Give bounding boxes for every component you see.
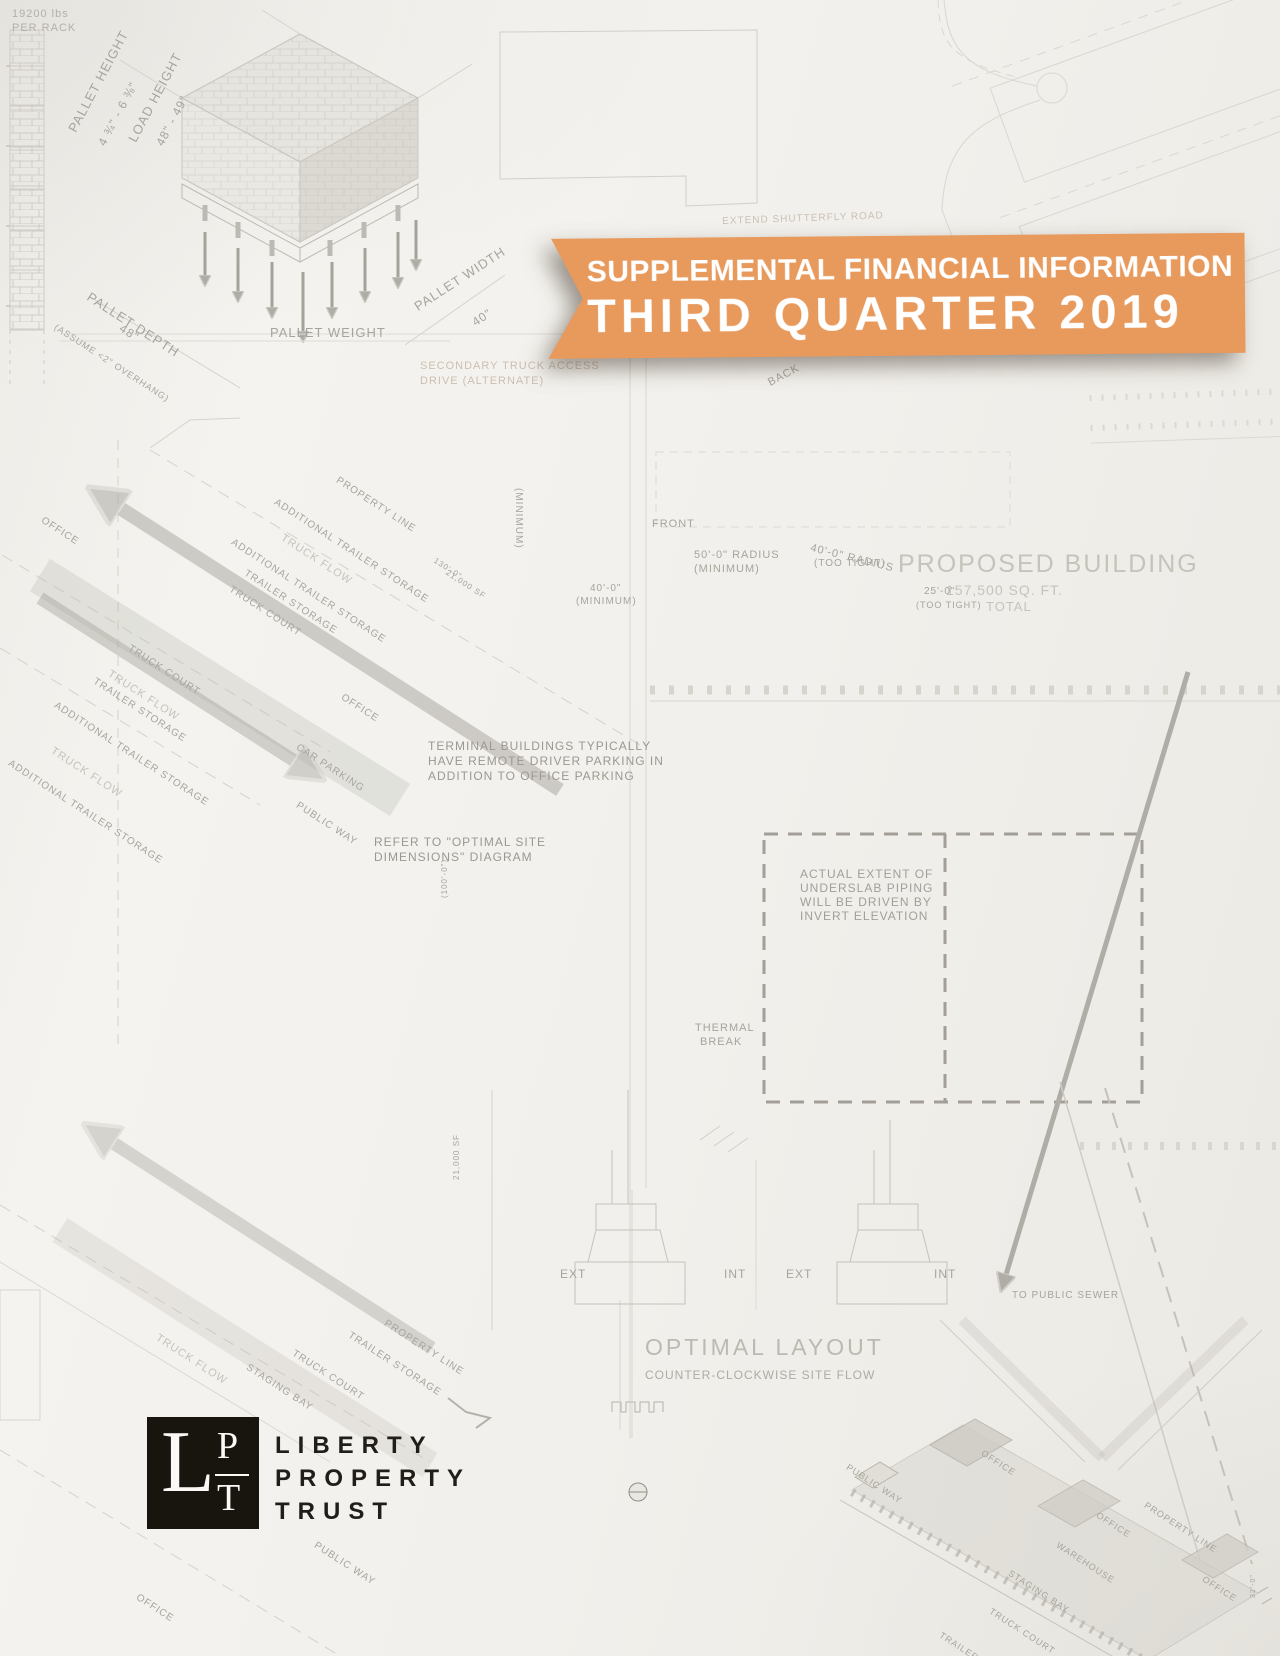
- report-cover-page: 19200 lbsPER RACKPALLET HEIGHT4 ¾" - 6 ⅜…: [0, 0, 1280, 1656]
- blueprint-label: ADDITION TO OFFICE PARKING: [428, 770, 635, 784]
- blueprint-label: (MINIMUM): [576, 596, 637, 608]
- blueprint-label: 21,000 SF: [444, 568, 488, 601]
- blueprint-label: FRONT: [652, 518, 695, 531]
- blueprint-label: TRAILER STORAGE: [346, 1330, 443, 1399]
- blueprint-label: (MINIMUM): [694, 563, 760, 576]
- blueprint-label: TRAILER STORAGE: [937, 1630, 1026, 1656]
- blueprint-label: 157,500 SQ. FT.: [946, 582, 1063, 598]
- blueprint-label: (TOO TIGHT): [916, 600, 982, 610]
- title-banner-ribbon: SUPPLEMENTAL FINANCIAL INFORMATION THIRD…: [504, 233, 1245, 359]
- blueprint-label: TOTAL: [986, 600, 1032, 615]
- blueprint-label: OFFICE: [339, 692, 381, 725]
- blueprint-label: PROPERTY LINE: [1142, 1500, 1219, 1555]
- blueprint-label: STAGING BAY: [1006, 1568, 1071, 1615]
- company-name: LIBERTY PROPERTY TRUST: [275, 1429, 471, 1528]
- title-banner: SUPPLEMENTAL FINANCIAL INFORMATION THIRD…: [504, 233, 1245, 359]
- company-name-line3: TRUST: [275, 1495, 471, 1528]
- logo-letter-p: P: [217, 1427, 238, 1465]
- blueprint-label: TRUCK COURT: [987, 1606, 1057, 1656]
- blueprint-label: COUNTER-CLOCKWISE SITE FLOW: [645, 1369, 875, 1383]
- blueprint-label: TO PUBLIC SEWER: [1012, 1290, 1119, 1302]
- blueprint-label: EXT: [786, 1268, 812, 1282]
- blueprint-label: 50'-0" RADIUS: [694, 549, 780, 562]
- blueprint-label: EXT: [560, 1268, 586, 1282]
- blueprint-label: OFFICE: [1200, 1574, 1238, 1604]
- logo-letter-l: L: [161, 1419, 215, 1507]
- logo-divider-bar: [215, 1474, 249, 1476]
- blueprint-label: 32'-0": [1250, 1574, 1258, 1598]
- blueprint-label: UNDERSLAB PIPING: [800, 882, 933, 896]
- banner-subtitle: SUPPLEMENTAL FINANCIAL INFORMATION: [587, 250, 1245, 289]
- blueprint-label: 25'-0": [924, 586, 955, 598]
- blueprint-label: PROPERTY LINE: [334, 475, 418, 535]
- blueprint-label: 40'-0": [590, 583, 621, 595]
- blueprint-label: PUBLIC WAY: [312, 1540, 377, 1588]
- blueprint-label: ACTUAL EXTENT OF: [800, 868, 933, 882]
- company-logo-mark: L P T: [147, 1417, 259, 1529]
- blueprint-label: TERMINAL BUILDINGS TYPICALLY: [428, 740, 651, 754]
- blueprint-label: REFER TO "OPTIMAL SITE: [374, 836, 546, 850]
- blueprint-label: 21,000 SF: [452, 1134, 461, 1180]
- banner-title: THIRD QUARTER 2019: [587, 286, 1245, 341]
- blueprint-label: SECONDARY TRUCK ACCESS: [420, 360, 600, 373]
- blueprint-label: WAREHOUSE: [1054, 1540, 1116, 1586]
- blueprint-label: BACK: [766, 362, 802, 389]
- blueprint-label: (TOO TIGHT): [814, 558, 886, 570]
- blueprint-label: EXTEND SHUTTERFLY ROAD: [722, 210, 884, 227]
- blueprint-label: PALLET WEIGHT: [270, 326, 386, 341]
- blueprint-label: STAGING BAY: [244, 1362, 315, 1414]
- blueprint-label: OFFICE: [979, 1448, 1017, 1478]
- blueprint-label: ADDITIONAL TRAILER STORAGE: [52, 700, 211, 809]
- blueprint-label: PALLET WIDTH: [412, 245, 509, 315]
- blueprint-label: INVERT ELEVATION: [800, 910, 928, 924]
- blueprint-label: TRUCK FLOW: [153, 1332, 229, 1388]
- blueprint-label: DRIVE (ALTERNATE): [420, 375, 544, 388]
- blueprint-label: BREAK: [700, 1036, 742, 1049]
- company-name-line1: LIBERTY: [275, 1429, 471, 1462]
- blueprint-label: CAR PARKING: [294, 742, 367, 795]
- blueprint-label: 19200 lbs: [12, 8, 69, 21]
- blueprint-label: PUBLIC WAY: [294, 800, 359, 848]
- blueprint-label: 40": [470, 307, 495, 330]
- blueprint-label: INT: [934, 1268, 956, 1282]
- blueprint-label: (MINIMUM): [513, 488, 525, 549]
- blueprint-label: OFFICE: [1094, 1510, 1132, 1540]
- blueprint-label: DIMENSIONS" DIAGRAM: [374, 851, 533, 865]
- company-name-line2: PROPERTY: [275, 1462, 471, 1495]
- blueprint-label: PUBLIC WAY: [844, 1462, 904, 1506]
- blueprint-label: PER RACK: [12, 22, 76, 35]
- blueprint-label: THERMAL: [695, 1022, 755, 1035]
- blueprint-label: OFFICE: [134, 1592, 176, 1625]
- blueprint-label: INT: [724, 1268, 746, 1282]
- blueprint-label: HAVE REMOTE DRIVER PARKING IN: [428, 755, 664, 769]
- blueprint-label: OPTIMAL LAYOUT: [645, 1334, 884, 1360]
- blueprint-label: PROPOSED BUILDING: [898, 550, 1199, 579]
- logo-letter-t: T: [217, 1479, 240, 1517]
- blueprint-label: WILL BE DRIVEN BY: [800, 896, 932, 910]
- blueprint-label: OFFICE: [39, 515, 81, 548]
